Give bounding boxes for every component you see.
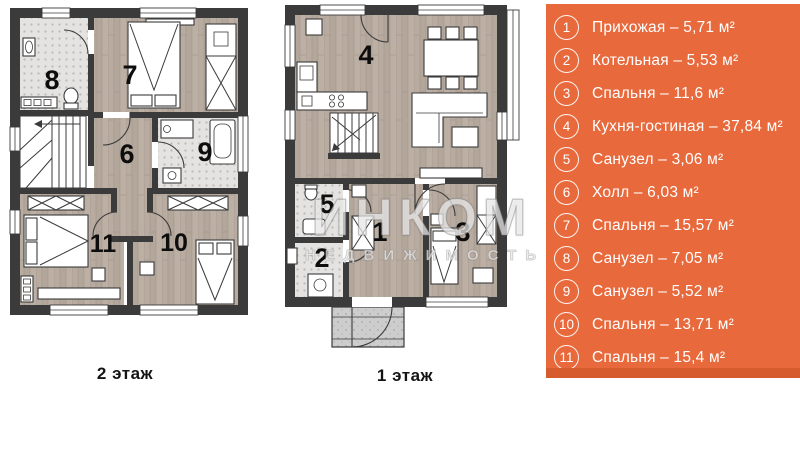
nightstand-room11 — [92, 268, 105, 281]
legend-item: 10 Спальня – 13,71 м² — [546, 308, 800, 341]
room-number-7: 7 — [122, 60, 137, 90]
bed-room3 — [431, 228, 458, 284]
toilet-room8 — [64, 88, 78, 109]
legend-number-badge: 9 — [554, 279, 579, 304]
cabinet-entry — [352, 185, 366, 197]
room-number-1: 1 — [372, 217, 387, 247]
legend-number-badge: 7 — [554, 213, 579, 238]
toilet-room5 — [305, 185, 317, 200]
legend-number-badge: 11 — [554, 345, 579, 370]
room-number-11: 11 — [90, 230, 117, 258]
legend-number-badge: 5 — [554, 147, 579, 172]
legend-item: 1 Прихожая – 5,71 м² — [546, 11, 800, 44]
floorplan-page: 8 7 6 9 11 10 — [0, 0, 800, 459]
boiler-room2 — [308, 274, 333, 297]
legend-footer-stripe — [546, 368, 800, 378]
coffee-table — [452, 127, 478, 147]
room-number-10: 10 — [160, 229, 188, 257]
legend-item: 6 Холл – 6,03 м² — [546, 176, 800, 209]
vanity-room9 — [161, 120, 193, 138]
wardrobe-room10 — [168, 196, 228, 210]
legend-item-label: Санузел – 3,06 м² — [592, 151, 723, 169]
floor1-label: 1 этаж — [325, 366, 485, 386]
dresser-room3 — [473, 268, 493, 283]
dining-table — [424, 27, 478, 89]
legend-number-badge: 2 — [554, 48, 579, 73]
legend-item-label: Холл – 6,03 м² — [592, 184, 699, 202]
legend-item: 3 Спальня – 11,6 м² — [546, 77, 800, 110]
legend-number-badge: 1 — [554, 15, 579, 40]
bed-room10 — [196, 240, 234, 304]
legend-item: 9 Санузел – 5,52 м² — [546, 275, 800, 308]
legend-item: 7 Спальня – 15,57 м² — [546, 209, 800, 242]
room-number-9: 9 — [197, 137, 212, 167]
floorplans-drawing: 8 7 6 9 11 10 — [0, 0, 540, 352]
tv-cabinet — [420, 168, 482, 178]
floor2-plan: 8 7 6 9 11 10 — [10, 8, 248, 315]
legend-panel: 1 Прихожая – 5,71 м² 2 Котельная – 5,53 … — [546, 4, 800, 378]
legend-number-badge: 4 — [554, 114, 579, 139]
dresser-room11 — [21, 276, 33, 302]
room-number-4: 4 — [358, 40, 373, 70]
floor1-stairs — [330, 113, 378, 153]
wardrobe-room11 — [28, 196, 84, 210]
room-number-3: 3 — [455, 217, 470, 247]
legend-item: 4 Кухня-гостиная – 37,84 м² — [546, 110, 800, 143]
legend-list: 1 Прихожая – 5,71 м² 2 Котельная – 5,53 … — [546, 4, 800, 374]
floor2-label: 2 этаж — [45, 364, 205, 384]
radiator-room2 — [287, 248, 297, 264]
fridge — [306, 19, 322, 35]
legend-item-label: Спальня – 15,57 м² — [592, 217, 734, 235]
legend-item-label: Спальня – 13,71 м² — [592, 316, 734, 334]
vanity-room8 — [21, 97, 57, 108]
legend-item-label: Спальня – 11,6 м² — [592, 85, 724, 103]
legend-number-badge: 10 — [554, 312, 579, 337]
bathtub-room9 — [210, 120, 235, 164]
legend-item-label: Санузел – 5,52 м² — [592, 283, 723, 301]
nightstand-room10 — [140, 262, 154, 275]
floor2-stairs — [20, 116, 86, 188]
bed-room11 — [24, 215, 88, 267]
sink-room5 — [303, 219, 325, 234]
floor1-porch — [332, 307, 404, 347]
wardrobe-entry — [352, 216, 374, 250]
legend-item-label: Прихожая – 5,71 м² — [592, 19, 735, 37]
nightstand-room3 — [431, 214, 443, 225]
room-number-2: 2 — [314, 243, 329, 273]
legend-number-badge: 6 — [554, 180, 579, 205]
room-number-6: 6 — [119, 139, 134, 169]
floor1-plan: 4 5 2 1 3 — [285, 5, 519, 347]
legend-item-label: Спальня – 15,4 м² — [592, 349, 725, 367]
wardrobe-room3 — [477, 186, 496, 244]
legend-item: 8 Санузел – 7,05 м² — [546, 242, 800, 275]
terrace-rail — [507, 10, 519, 140]
legend-number-badge: 3 — [554, 81, 579, 106]
room-number-5: 5 — [319, 189, 334, 219]
legend-item: 5 Санузел – 3,06 м² — [546, 143, 800, 176]
wardrobe-room7 — [206, 24, 236, 110]
cabinet-room11 — [38, 288, 120, 299]
legend-item: 2 Котельная – 5,53 м² — [546, 44, 800, 77]
legend-item-label: Кухня-гостиная – 37,84 м² — [592, 118, 783, 136]
legend-item-label: Котельная – 5,53 м² — [592, 52, 738, 70]
washing-machine-room9 — [163, 168, 181, 183]
legend-item-label: Санузел – 7,05 м² — [592, 250, 723, 268]
legend-number-badge: 8 — [554, 246, 579, 271]
sink-room8 — [23, 38, 35, 56]
room-number-8: 8 — [44, 65, 59, 95]
